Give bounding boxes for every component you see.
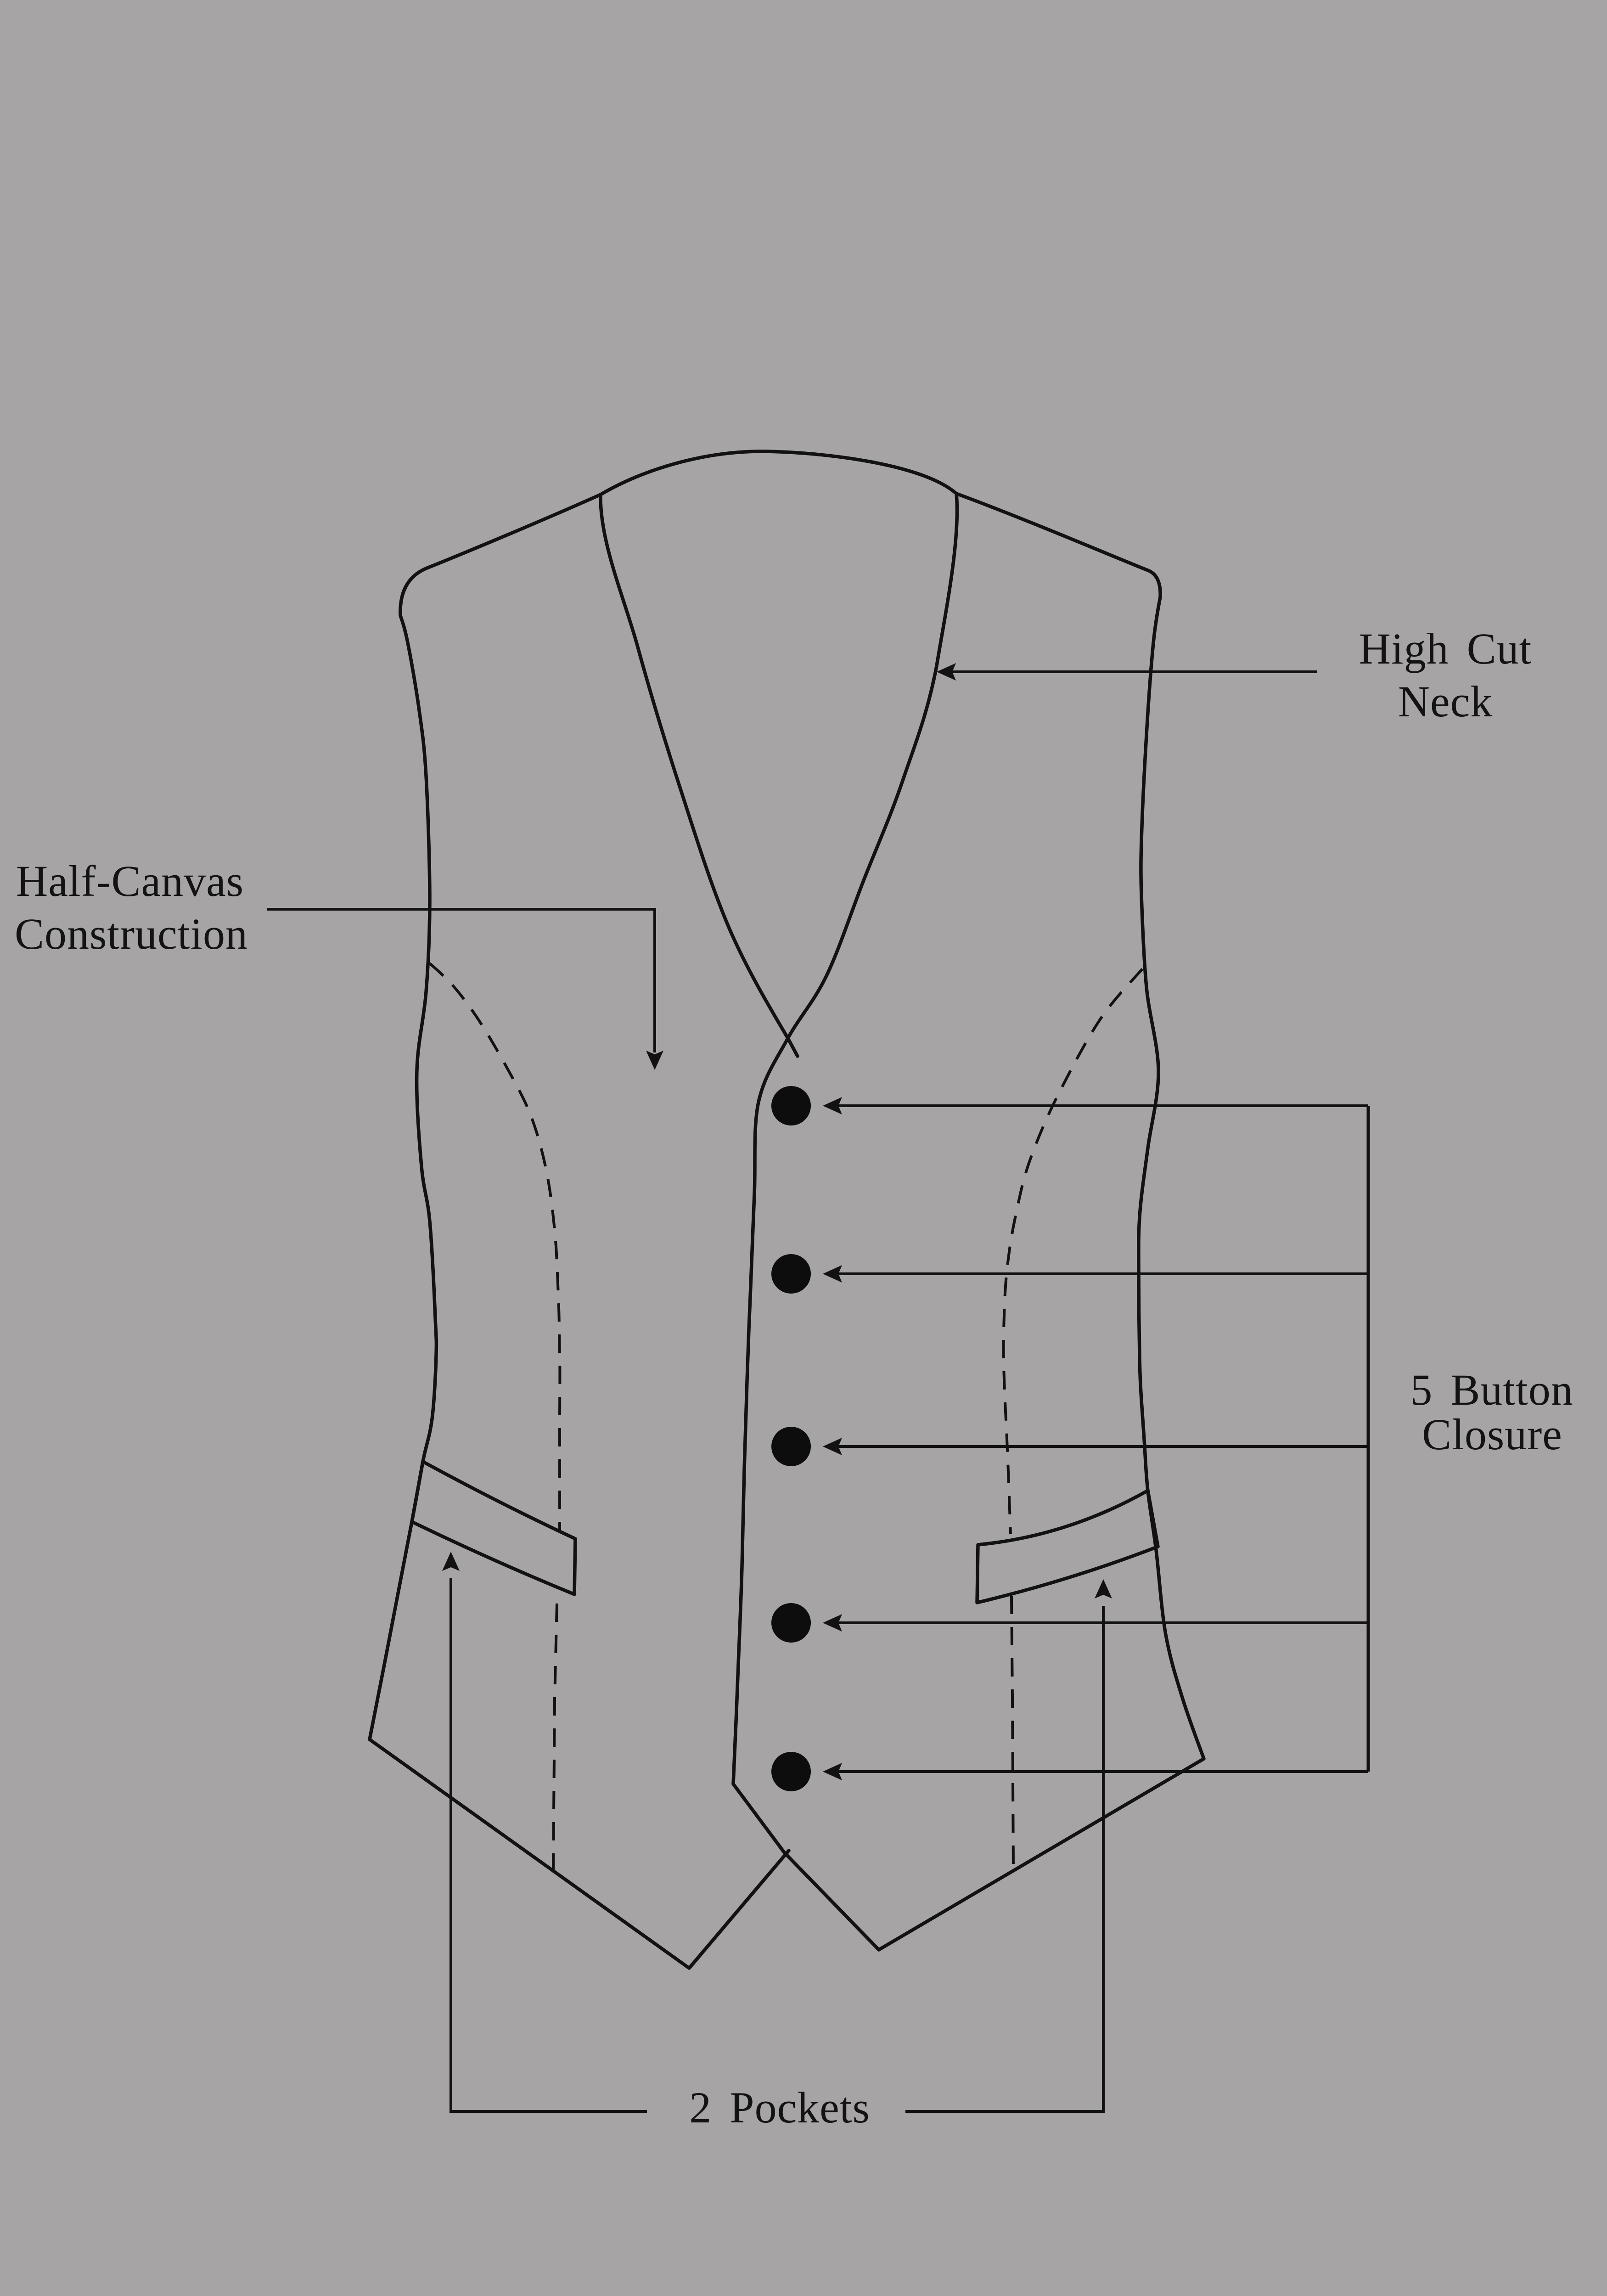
svg-text:Closure: Closure	[1422, 1410, 1562, 1459]
svg-text:Construction: Construction	[15, 909, 248, 958]
svg-text:High Cut: High Cut	[1359, 624, 1532, 673]
svg-text:2 Pockets: 2 Pockets	[689, 2083, 870, 2132]
svg-text:5 Button: 5 Button	[1410, 1365, 1573, 1414]
svg-text:Half-Canvas: Half-Canvas	[16, 856, 244, 906]
svg-text:Neck: Neck	[1398, 677, 1493, 726]
